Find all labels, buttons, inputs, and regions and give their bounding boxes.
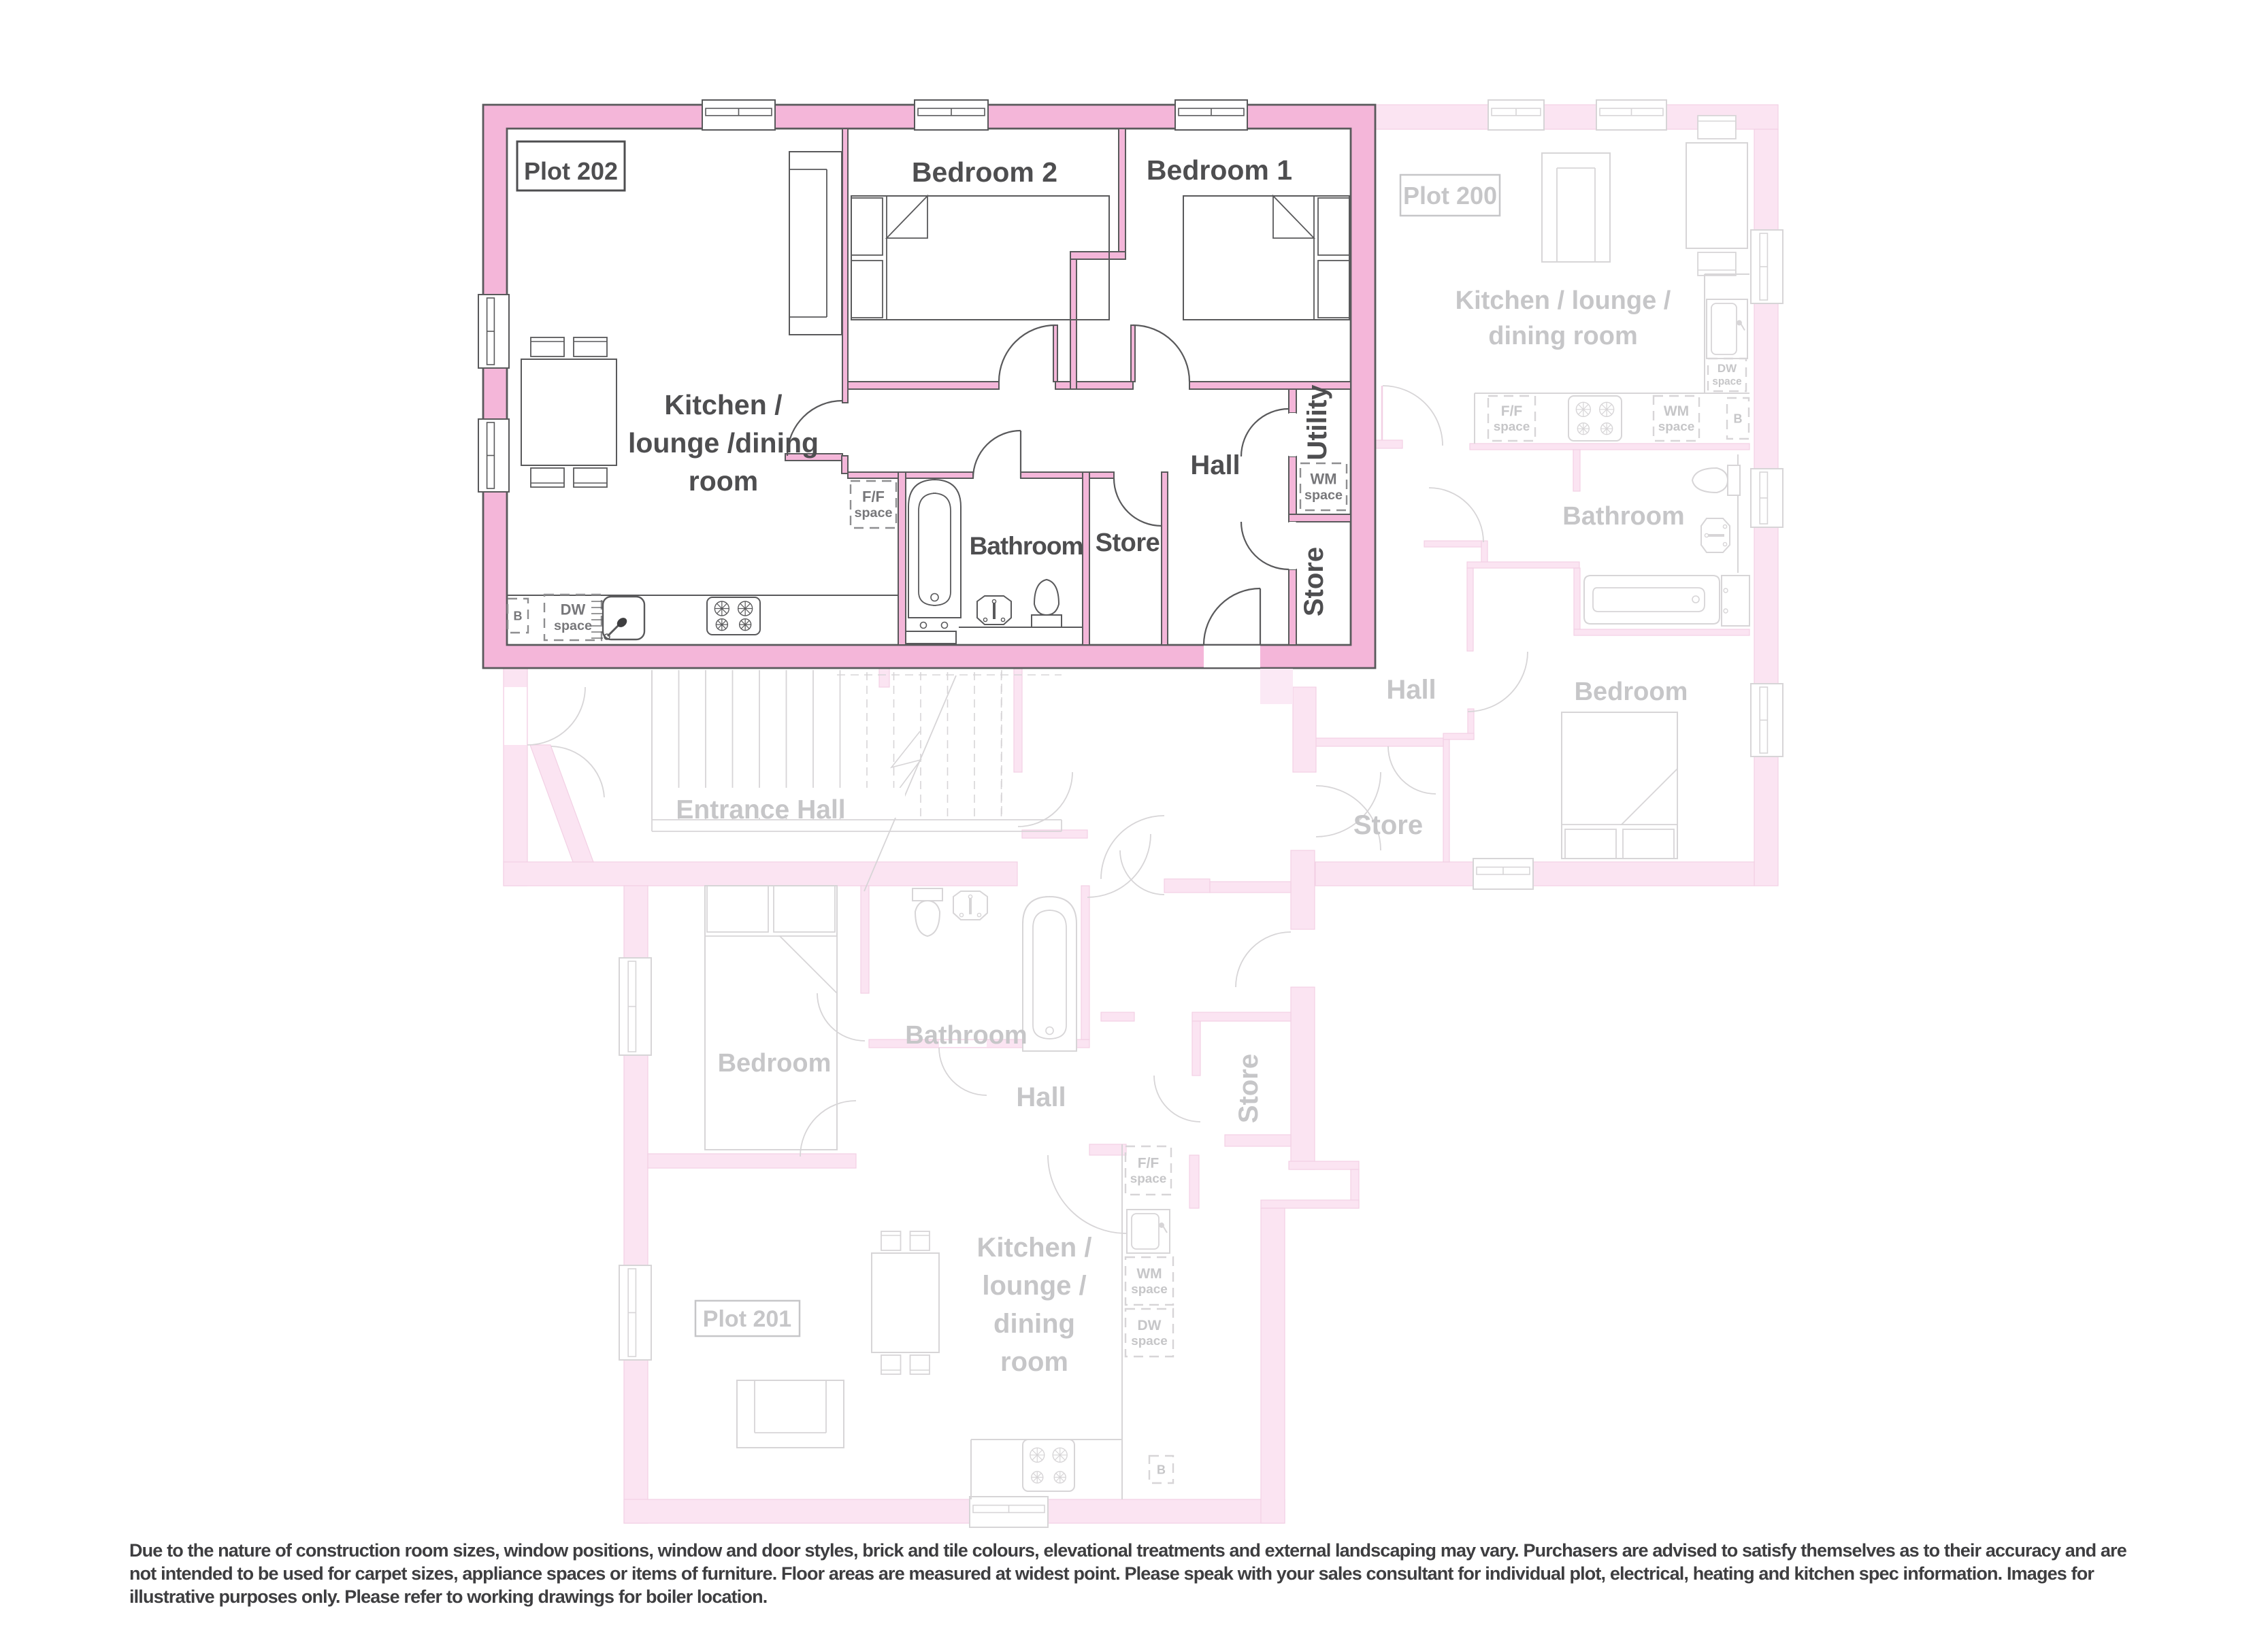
svg-text:Bedroom 1: Bedroom 1 xyxy=(1147,154,1292,186)
svg-text:not intended to be used for ca: not intended to be used for carpet sizes… xyxy=(129,1563,2094,1584)
svg-text:room: room xyxy=(689,465,759,497)
svg-text:Plot 202: Plot 202 xyxy=(524,157,618,185)
svg-text:Store: Store xyxy=(1234,1054,1264,1123)
svg-text:Bathroom: Bathroom xyxy=(905,1021,1027,1050)
svg-text:illustrative purposes only. Pl: illustrative purposes only. Please refer… xyxy=(129,1586,767,1607)
svg-text:Bedroom 2: Bedroom 2 xyxy=(912,156,1057,188)
svg-text:Store: Store xyxy=(1299,547,1329,616)
svg-text:space: space xyxy=(554,618,592,633)
svg-text:Bathroom: Bathroom xyxy=(1562,502,1684,531)
svg-text:space: space xyxy=(1494,420,1530,434)
svg-text:space: space xyxy=(1304,488,1343,503)
svg-text:space: space xyxy=(1658,420,1695,434)
svg-text:Entrance Hall: Entrance Hall xyxy=(676,795,845,825)
svg-text:Hall: Hall xyxy=(1016,1082,1066,1112)
svg-text:room: room xyxy=(1000,1347,1068,1377)
svg-text:Plot 200: Plot 200 xyxy=(1403,182,1497,210)
svg-text:DW: DW xyxy=(1138,1318,1162,1333)
svg-text:lounge /: lounge / xyxy=(982,1271,1086,1301)
svg-text:DW: DW xyxy=(561,601,586,618)
svg-text:WM: WM xyxy=(1664,403,1689,419)
svg-text:B: B xyxy=(1157,1463,1166,1476)
svg-text:space: space xyxy=(854,505,892,520)
svg-text:Store: Store xyxy=(1353,810,1423,840)
svg-text:space: space xyxy=(1712,376,1741,387)
svg-text:dining: dining xyxy=(993,1309,1075,1339)
svg-text:Hall: Hall xyxy=(1386,675,1436,705)
svg-text:F/F: F/F xyxy=(1138,1156,1160,1171)
svg-text:Utility: Utility xyxy=(1302,384,1332,461)
svg-text:B: B xyxy=(1734,412,1743,425)
svg-text:Bedroom: Bedroom xyxy=(1575,678,1688,706)
svg-text:Bathroom: Bathroom xyxy=(970,532,1083,560)
svg-text:F/F: F/F xyxy=(1501,403,1523,419)
svg-text:Kitchen / lounge /: Kitchen / lounge / xyxy=(1456,286,1671,315)
svg-text:space: space xyxy=(1131,1334,1168,1348)
svg-text:WM: WM xyxy=(1136,1266,1162,1282)
svg-text:Plot 201: Plot 201 xyxy=(703,1306,791,1332)
svg-text:Bedroom: Bedroom xyxy=(718,1049,832,1078)
svg-text:Due to the nature of construct: Due to the nature of construction room s… xyxy=(129,1540,2127,1561)
svg-text:Store: Store xyxy=(1096,529,1160,557)
svg-text:Kitchen /: Kitchen / xyxy=(664,389,782,420)
svg-text:Hall: Hall xyxy=(1190,450,1240,480)
svg-text:dining room: dining room xyxy=(1488,322,1638,350)
svg-text:WM: WM xyxy=(1310,471,1336,488)
svg-text:space: space xyxy=(1130,1171,1167,1186)
svg-text:F/F: F/F xyxy=(862,488,885,505)
svg-text:B: B xyxy=(514,609,523,622)
svg-text:DW: DW xyxy=(1718,362,1737,375)
svg-text:space: space xyxy=(1131,1282,1168,1297)
svg-text:lounge /dining: lounge /dining xyxy=(628,427,819,459)
svg-text:Kitchen /: Kitchen / xyxy=(977,1233,1092,1263)
